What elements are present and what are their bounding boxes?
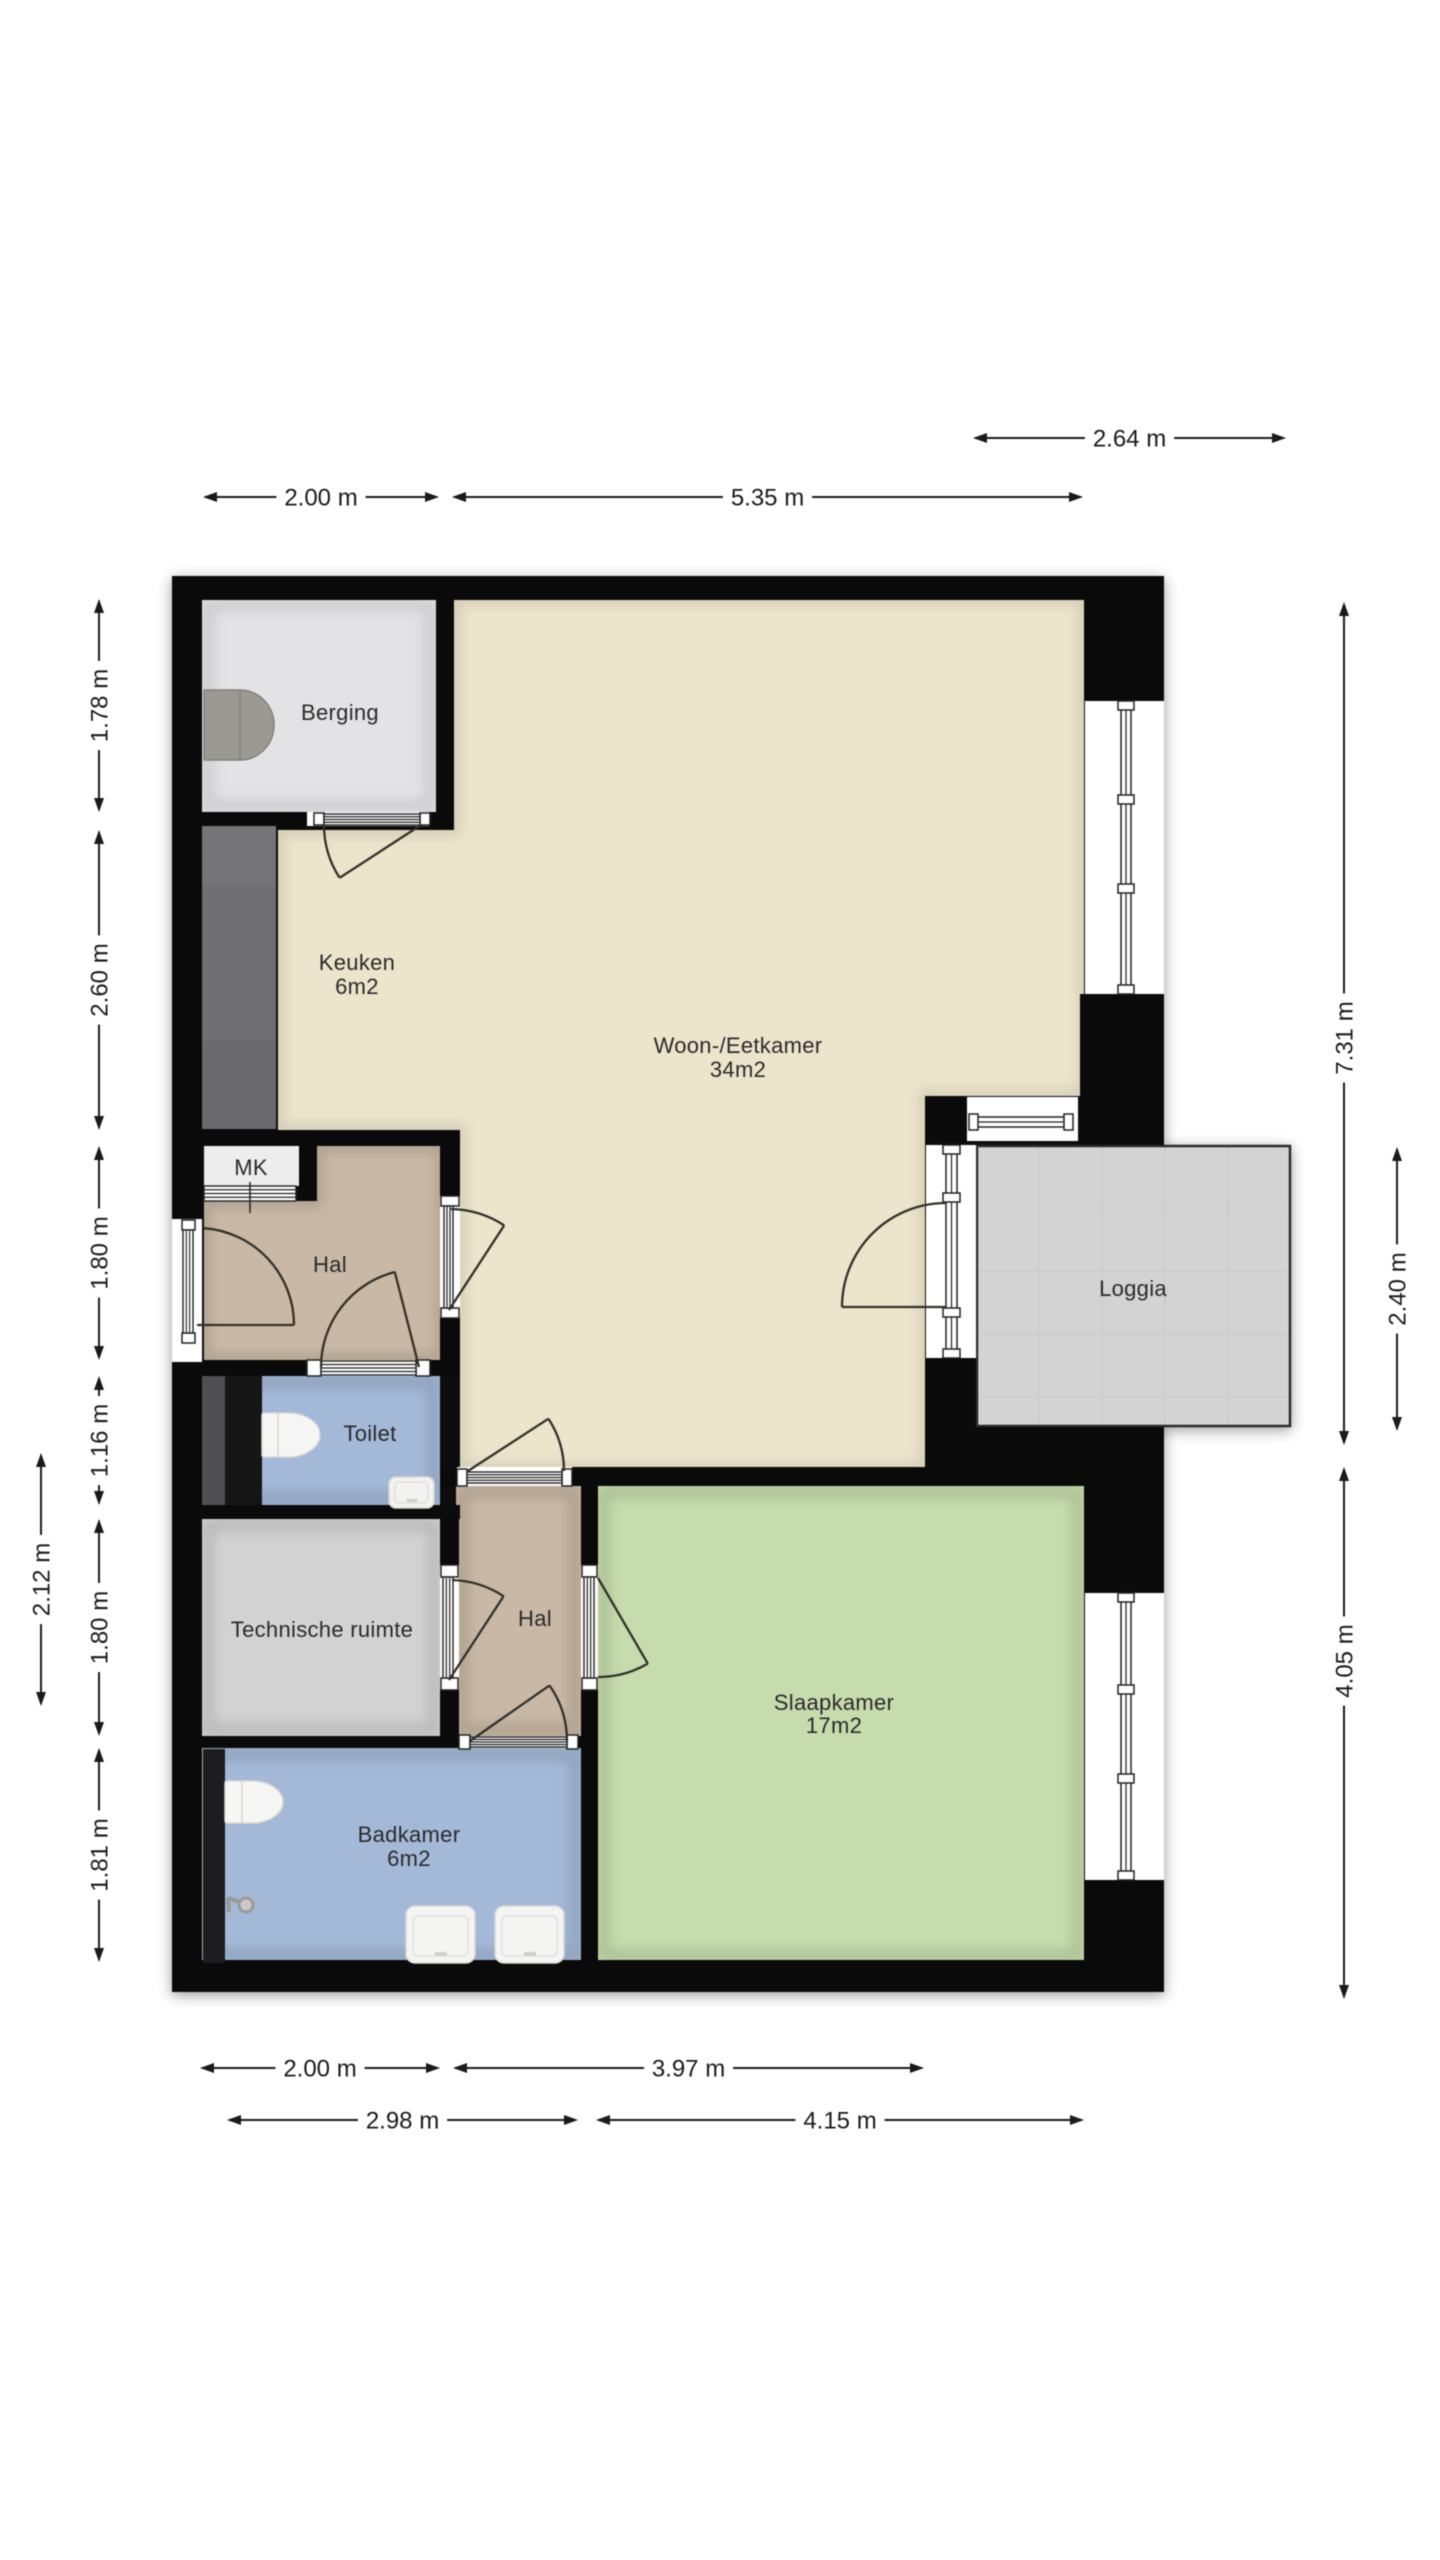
- svg-text:6m2: 6m2: [335, 974, 379, 999]
- svg-text:Slaapkamer: Slaapkamer: [774, 1690, 894, 1715]
- svg-text:6m2: 6m2: [387, 1846, 431, 1871]
- svg-text:Berging: Berging: [301, 700, 379, 725]
- svg-text:1.81 m: 1.81 m: [87, 1818, 114, 1891]
- svg-text:Woon-/Eetkamer: Woon-/Eetkamer: [654, 1033, 823, 1058]
- svg-text:Keuken: Keuken: [319, 950, 395, 975]
- svg-text:Hal: Hal: [518, 1606, 552, 1631]
- svg-text:1.78 m: 1.78 m: [87, 669, 114, 742]
- svg-text:2.98 m: 2.98 m: [366, 2108, 439, 2135]
- svg-text:1.16 m: 1.16 m: [87, 1404, 114, 1477]
- svg-text:Loggia: Loggia: [1099, 1276, 1167, 1301]
- svg-text:2.00 m: 2.00 m: [283, 2056, 356, 2083]
- svg-text:5.35 m: 5.35 m: [731, 485, 804, 512]
- svg-text:2.00 m: 2.00 m: [284, 485, 357, 512]
- svg-text:1.80 m: 1.80 m: [87, 1591, 114, 1664]
- svg-text:Technische ruimte: Technische ruimte: [231, 1617, 413, 1642]
- svg-text:2.64 m: 2.64 m: [1093, 426, 1166, 453]
- svg-text:Badkamer: Badkamer: [358, 1822, 461, 1847]
- svg-text:4.15 m: 4.15 m: [803, 2108, 876, 2135]
- svg-text:Toilet: Toilet: [343, 1421, 396, 1446]
- svg-text:Hal: Hal: [313, 1252, 347, 1277]
- svg-text:3.97 m: 3.97 m: [652, 2056, 725, 2083]
- svg-text:17m2: 17m2: [806, 1713, 862, 1738]
- svg-text:2.60 m: 2.60 m: [87, 943, 114, 1016]
- svg-text:2.12 m: 2.12 m: [29, 1543, 56, 1616]
- svg-text:2.40 m: 2.40 m: [1385, 1252, 1412, 1325]
- svg-text:4.05 m: 4.05 m: [1332, 1624, 1359, 1697]
- svg-text:34m2: 34m2: [710, 1057, 766, 1082]
- svg-text:MK: MK: [234, 1155, 268, 1180]
- svg-text:7.31 m: 7.31 m: [1332, 1001, 1359, 1074]
- svg-text:1.80 m: 1.80 m: [87, 1216, 114, 1289]
